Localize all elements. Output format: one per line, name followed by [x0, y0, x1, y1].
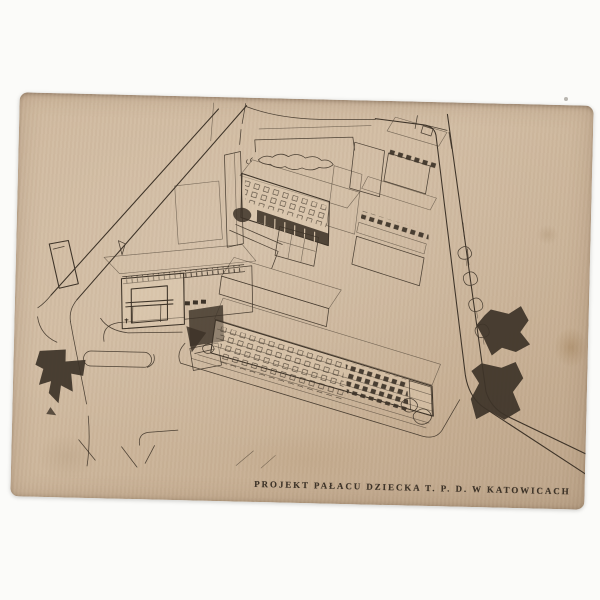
- side-wing-roof: [327, 166, 363, 235]
- avenue-corner: [70, 300, 77, 322]
- southwest-corner-curb: [37, 317, 58, 342]
- corner-tree-dark: [35, 349, 86, 404]
- gallery-window-row: [360, 210, 429, 240]
- street-sketch-strokes: [78, 440, 155, 468]
- northeast-wing: [325, 116, 447, 287]
- back-parapet: [255, 135, 355, 154]
- south-curb-piece: [139, 429, 178, 446]
- rear-building: [238, 135, 361, 247]
- north-road-curb: [246, 107, 375, 121]
- dark-tree-a: [476, 305, 531, 356]
- garden-hatch: [173, 180, 223, 245]
- architectural-drawing: [10, 92, 593, 509]
- small-dark-windows: [201, 300, 206, 304]
- tree-cloud: [258, 154, 333, 171]
- postcard: PROJEKT PAŁACU DZIECKA T. P. D. W KATOWI…: [10, 92, 593, 509]
- middle-wing-wall: [218, 276, 329, 327]
- lamp-post: [211, 103, 214, 141]
- trees: [34, 237, 532, 427]
- photo-of-postcard: { "scene": { "background_color": "#fbfbf…: [0, 0, 600, 600]
- streets: [34, 99, 593, 478]
- traffic-island: [83, 351, 151, 368]
- dark-tree-b: [470, 361, 523, 420]
- window-grid-outline: [219, 326, 346, 400]
- west-street-curb: [67, 322, 92, 466]
- trellis-walk: [222, 151, 245, 247]
- dust-speck: [564, 97, 568, 101]
- ne-gallery-windows: [387, 147, 438, 169]
- ne-lawn-2: [351, 236, 424, 286]
